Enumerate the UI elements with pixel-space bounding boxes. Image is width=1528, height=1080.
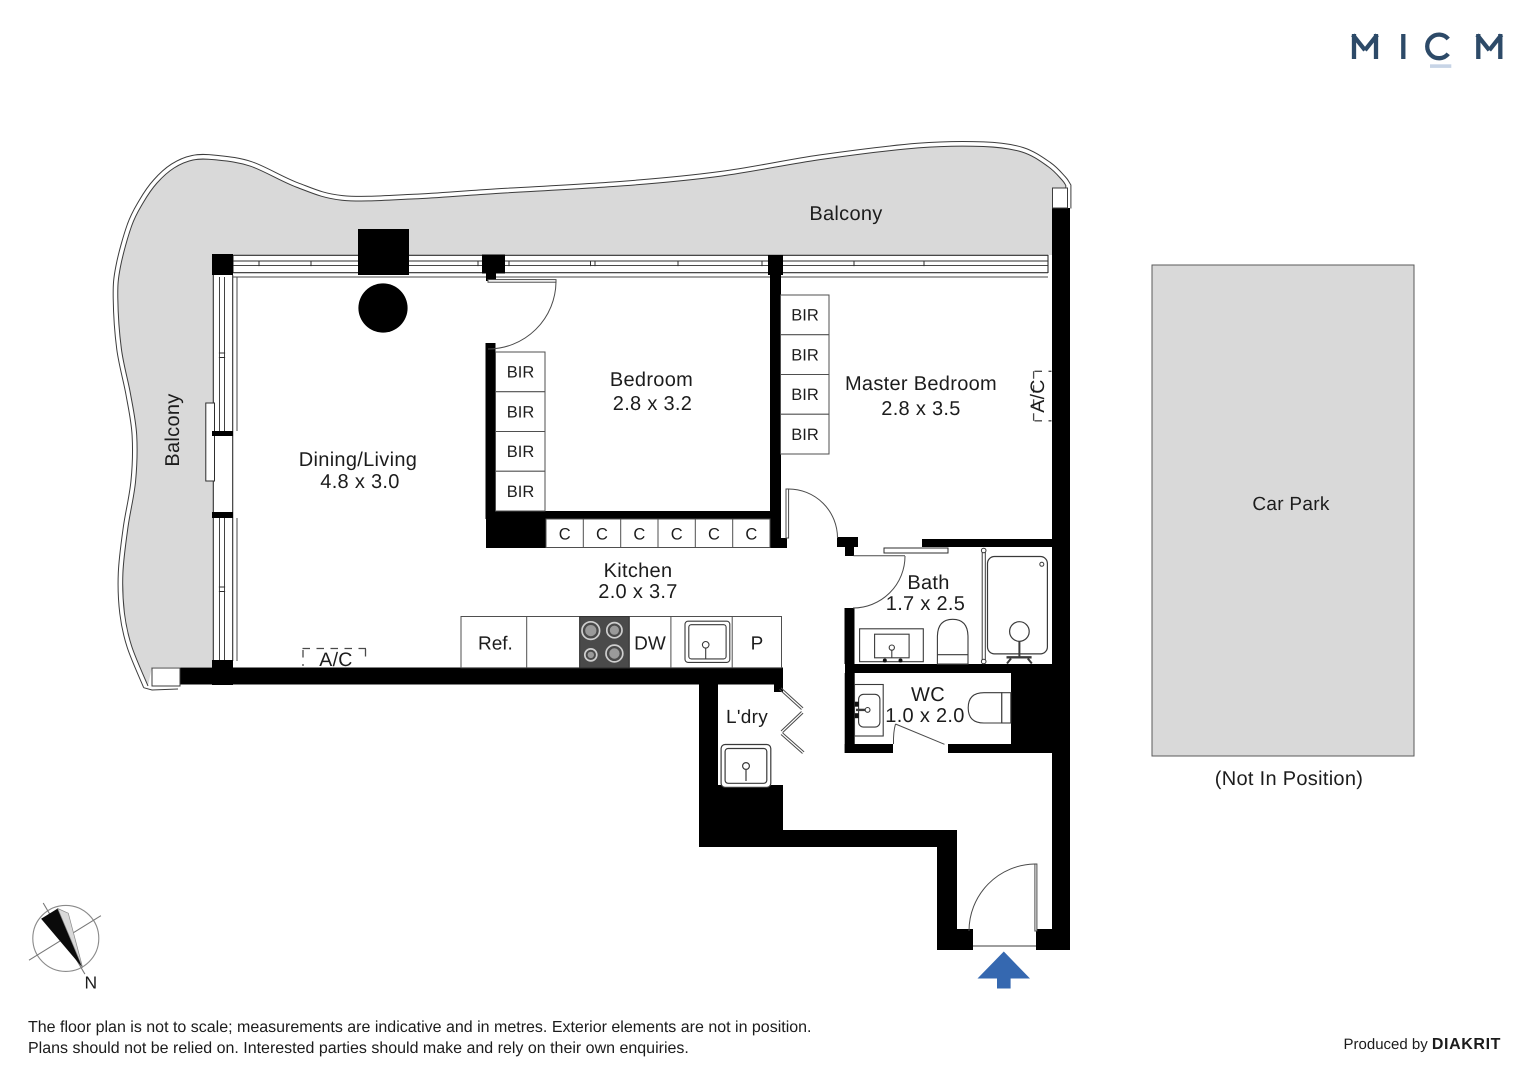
svg-text:WC: WC <box>911 684 945 706</box>
svg-text:N: N <box>85 973 98 993</box>
svg-text:Produced by DIAKRIT: Produced by DIAKRIT <box>1344 1036 1501 1053</box>
svg-text:Kitchen: Kitchen <box>604 560 673 582</box>
svg-text:C: C <box>708 526 720 544</box>
svg-text:Master Bedroom: Master Bedroom <box>845 373 997 395</box>
svg-text:BIR: BIR <box>791 426 819 444</box>
svg-text:2.8 x 3.5: 2.8 x 3.5 <box>881 398 960 420</box>
svg-text:C: C <box>633 526 645 544</box>
svg-text:C: C <box>559 526 571 544</box>
svg-text:BIR: BIR <box>791 386 819 404</box>
svg-text:1.7 x 2.5: 1.7 x 2.5 <box>886 593 965 615</box>
svg-text:P: P <box>751 634 764 655</box>
svg-text:BIR: BIR <box>791 307 819 325</box>
svg-text:A/C: A/C <box>319 649 352 671</box>
svg-text:Car Park: Car Park <box>1252 494 1330 515</box>
svg-text:1.0 x 2.0: 1.0 x 2.0 <box>885 705 964 727</box>
svg-text:Bath: Bath <box>907 572 949 594</box>
svg-text:C: C <box>745 526 757 544</box>
svg-text:Plans should not be relied on.: Plans should not be relied on. Intereste… <box>28 1040 689 1057</box>
svg-text:L'dry: L'dry <box>726 707 768 728</box>
svg-text:C: C <box>671 526 683 544</box>
svg-text:BIR: BIR <box>507 483 535 501</box>
svg-text:Balcony: Balcony <box>809 203 882 225</box>
svg-text:DW: DW <box>634 634 666 655</box>
svg-text:2.0 x 3.7: 2.0 x 3.7 <box>598 581 677 603</box>
svg-text:2.8 x 3.2: 2.8 x 3.2 <box>613 393 692 415</box>
svg-text:(Not In Position): (Not In Position) <box>1215 768 1364 790</box>
svg-text:BIR: BIR <box>791 346 819 364</box>
svg-text:A/C: A/C <box>1027 379 1049 412</box>
svg-text:Ref.: Ref. <box>478 634 513 655</box>
svg-text:C: C <box>596 526 608 544</box>
svg-text:BIR: BIR <box>507 403 535 421</box>
svg-text:The floor plan is not to scale: The floor plan is not to scale; measurem… <box>28 1019 812 1036</box>
svg-text:4.8 x 3.0: 4.8 x 3.0 <box>320 471 399 493</box>
svg-text:Balcony: Balcony <box>162 393 184 466</box>
svg-text:BIR: BIR <box>507 443 535 461</box>
svg-text:Dining/Living: Dining/Living <box>299 449 417 471</box>
svg-text:BIR: BIR <box>507 364 535 382</box>
svg-text:Bedroom: Bedroom <box>610 369 693 391</box>
